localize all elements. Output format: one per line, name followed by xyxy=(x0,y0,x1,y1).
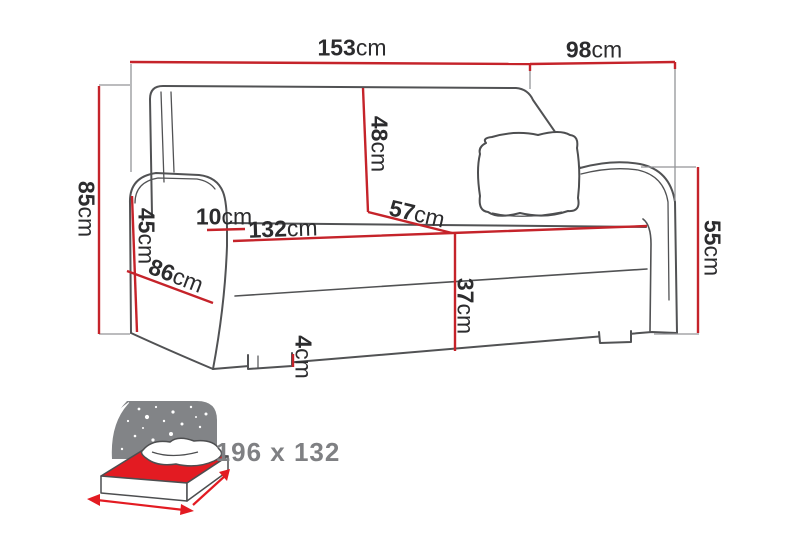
sofa-bed-sleeping-area-icon xyxy=(87,401,230,515)
front-left-leg xyxy=(248,353,292,369)
dim-label-seat-width: 132cm xyxy=(248,216,318,241)
dim-label-seat-height: 37cm xyxy=(454,278,477,334)
right-arm-outline xyxy=(580,162,677,333)
dim-label-backrest-height: 48cm xyxy=(368,116,391,172)
dim-label-leg-height: 4cm xyxy=(292,335,315,378)
dim-label-overall-width: 153cm xyxy=(317,37,386,60)
left-arm-bottom-edge xyxy=(131,333,213,369)
front-mid-seam xyxy=(235,269,647,296)
dim-label-arm-top-width: 10cm xyxy=(196,206,252,229)
dim-label-arm-height: 55cm xyxy=(701,220,724,276)
right-arm-seam xyxy=(581,169,669,300)
dim-label-overall-depth: 98cm xyxy=(566,39,622,62)
dim-line-overall-width xyxy=(130,62,530,64)
left-arm-seam xyxy=(135,178,215,203)
dim-label-overall-height: 85cm xyxy=(75,181,98,237)
front-right-leg xyxy=(599,331,631,343)
backrest-seam-lines xyxy=(161,92,174,182)
right-arm-front-edge xyxy=(643,219,651,331)
sleeping-area-label: 196 x 132 xyxy=(216,439,341,465)
pillow xyxy=(478,132,579,216)
sofa-dimension-diagram: 153cm 98cm 85cm 48cm 45cm 10cm 132cm 57c… xyxy=(0,0,800,533)
sofa-illustration xyxy=(0,0,800,533)
